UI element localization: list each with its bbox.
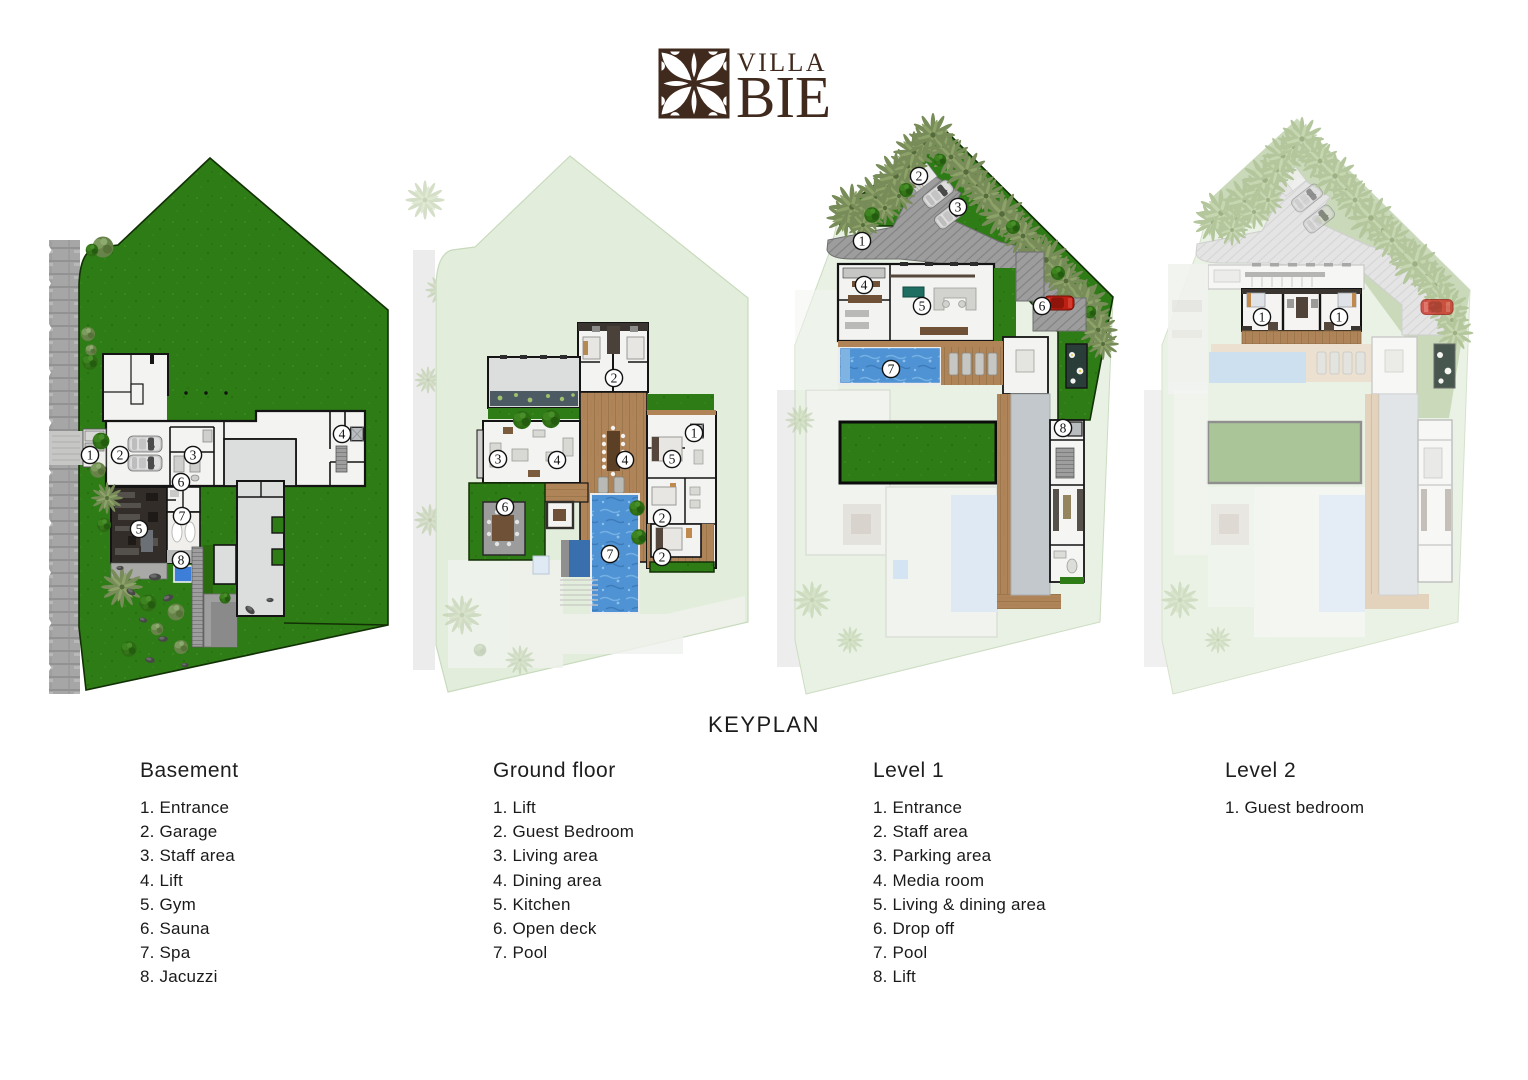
- svg-text:2: 2: [916, 169, 923, 184]
- svg-text:BIE: BIE: [736, 64, 831, 130]
- svg-text:7: 7: [607, 547, 614, 562]
- svg-text:3: 3: [955, 200, 962, 215]
- svg-text:4: 4: [339, 427, 346, 442]
- svg-text:6: 6: [1039, 299, 1046, 314]
- svg-text:5: 5: [919, 299, 926, 314]
- svg-text:2: 2: [117, 448, 124, 463]
- svg-text:6: 6: [502, 500, 509, 515]
- svg-text:5: 5: [136, 522, 143, 537]
- svg-text:1: 1: [1259, 310, 1266, 325]
- svg-text:1: 1: [691, 426, 698, 441]
- svg-text:3: 3: [190, 448, 197, 463]
- svg-text:1: 1: [87, 448, 94, 463]
- svg-text:4: 4: [622, 453, 629, 468]
- svg-text:8: 8: [178, 553, 185, 568]
- svg-text:2: 2: [659, 550, 666, 565]
- svg-text:6: 6: [178, 475, 185, 490]
- svg-text:4: 4: [861, 278, 868, 293]
- svg-text:1: 1: [859, 234, 866, 249]
- svg-text:2: 2: [611, 371, 618, 386]
- svg-text:8: 8: [1060, 421, 1067, 436]
- svg-text:1: 1: [1336, 310, 1343, 325]
- svg-text:7: 7: [888, 362, 895, 377]
- svg-text:2: 2: [659, 511, 666, 526]
- svg-text:3: 3: [495, 452, 502, 467]
- svg-text:7: 7: [179, 509, 186, 524]
- svg-text:5: 5: [669, 452, 676, 467]
- svg-text:4: 4: [554, 453, 561, 468]
